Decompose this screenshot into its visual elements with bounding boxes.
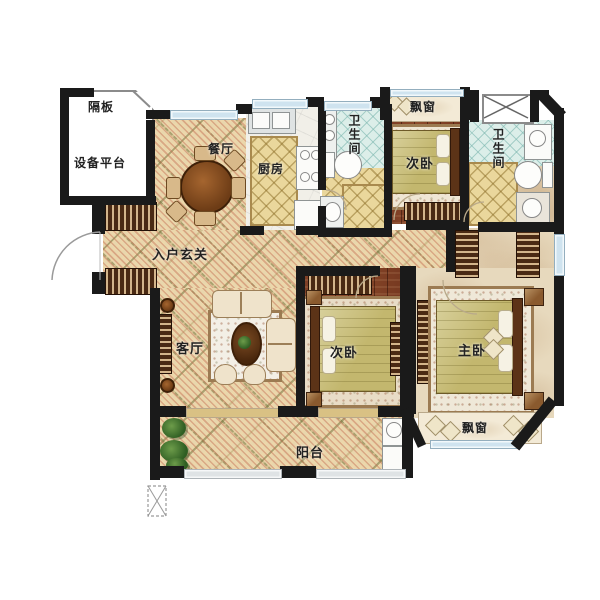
stove-burner (300, 172, 310, 182)
sofa-cushion-line (240, 292, 242, 314)
plant-pot (160, 298, 175, 313)
wall (92, 272, 105, 294)
wall (150, 466, 184, 478)
bay-window-bottom-glass (430, 440, 520, 449)
wall (554, 272, 564, 406)
nightstand (306, 392, 322, 407)
partition-board-label: 隔板 (88, 98, 114, 115)
balcony-window-2 (316, 469, 406, 479)
bathroom1-sink-bowl (324, 202, 341, 222)
wall (554, 108, 564, 234)
dining-chair (231, 177, 246, 199)
bathroom2-label: 卫生间 (490, 128, 507, 170)
wall (318, 104, 326, 190)
bathroom1-window (324, 101, 372, 111)
column-symbol-x (148, 486, 166, 516)
wall (60, 196, 156, 205)
bathroom2-shower (468, 162, 518, 226)
bathroom2-sink-bowl (522, 198, 542, 218)
wall (470, 90, 479, 122)
nightstand (306, 290, 322, 305)
bedroom-top-dresser (404, 202, 462, 221)
wall (318, 228, 392, 237)
wall (296, 266, 380, 276)
wall (535, 90, 549, 99)
wall (296, 266, 305, 414)
dining-room-label: 餐厅 (208, 140, 234, 157)
nightstand (524, 392, 544, 410)
balcony-door-sill (186, 408, 280, 418)
bathroom2-toilet (514, 161, 542, 189)
bathroom1-label: 卫生间 (346, 114, 363, 156)
bedroom-middle-window-sill (318, 408, 380, 418)
wall (446, 226, 455, 272)
wall (92, 200, 105, 234)
kitchen-sink-basin (272, 112, 290, 129)
bedroom-middle-headboard (310, 306, 320, 392)
wall (150, 406, 186, 417)
bathroom1-shower (342, 184, 388, 232)
shoe-cabinet-top (105, 202, 157, 231)
sofa-side (266, 318, 296, 372)
kitchen-label: 厨房 (258, 160, 284, 177)
entry-foyer-label: 入户玄关 (152, 244, 208, 263)
wall (146, 110, 170, 119)
balcony-floor (158, 414, 406, 474)
washer-door (529, 130, 546, 147)
balcony-plant (162, 418, 186, 438)
corridor-wardrobe-left (455, 230, 479, 278)
wall (236, 104, 252, 114)
dining-chair (194, 211, 216, 226)
master-bedroom-label: 主卧 (458, 340, 486, 359)
wall (400, 266, 416, 414)
armchair (214, 364, 237, 385)
stove-burner (300, 150, 310, 160)
bedroom-top-headboard (450, 128, 460, 196)
kitchen-window (252, 99, 308, 109)
wall (240, 226, 264, 235)
bedroom-middle-label: 次卧 (330, 342, 358, 361)
column-symbol-x (148, 486, 166, 516)
wall (146, 120, 155, 200)
pillow (436, 134, 450, 158)
pillow (322, 316, 336, 342)
balcony-label: 阳台 (296, 442, 324, 461)
wall (60, 88, 69, 202)
living-room-label: 客厅 (176, 338, 204, 357)
floor-plan: 隔板 设备平台 餐厅 厨房 卫生间 卫生间 飘窗 次卧 入户玄关 客厅 次卧 主… (0, 0, 600, 600)
wall (150, 288, 160, 480)
wall (460, 118, 469, 230)
wall (406, 220, 466, 230)
master-headboard (512, 298, 523, 396)
wall (280, 466, 316, 478)
balcony-window (184, 469, 282, 479)
dining-chair (166, 177, 181, 199)
pillow (436, 162, 450, 186)
right-wall-window (554, 234, 565, 276)
dining-table (180, 160, 234, 214)
sofa-main (212, 290, 272, 318)
balcony-washer-door (386, 422, 402, 438)
bay-window-top-glass (390, 89, 464, 97)
plant-pot (160, 378, 175, 393)
sofa-cushion-line (268, 343, 292, 345)
bathroom2-toilet-tank (542, 162, 553, 188)
nightstand (524, 288, 544, 306)
coffee-table-plant (238, 336, 251, 349)
bay-window-bottom-label: 飘窗 (462, 419, 488, 436)
kitchen-rug (250, 136, 298, 226)
bay-window-top-label: 飘窗 (410, 98, 436, 115)
kitchen-sink-basin (252, 112, 270, 129)
duct-shaft (482, 94, 534, 124)
corridor-wardrobe-right (516, 230, 540, 278)
dining-window (170, 110, 238, 120)
bedroom-top-label: 次卧 (406, 153, 434, 172)
wall (384, 104, 392, 228)
equipment-platform-label: 设备平台 (74, 154, 126, 171)
column-symbol-box (148, 486, 166, 516)
wall (478, 222, 558, 232)
tv-cabinet (159, 314, 172, 374)
armchair (243, 364, 266, 385)
